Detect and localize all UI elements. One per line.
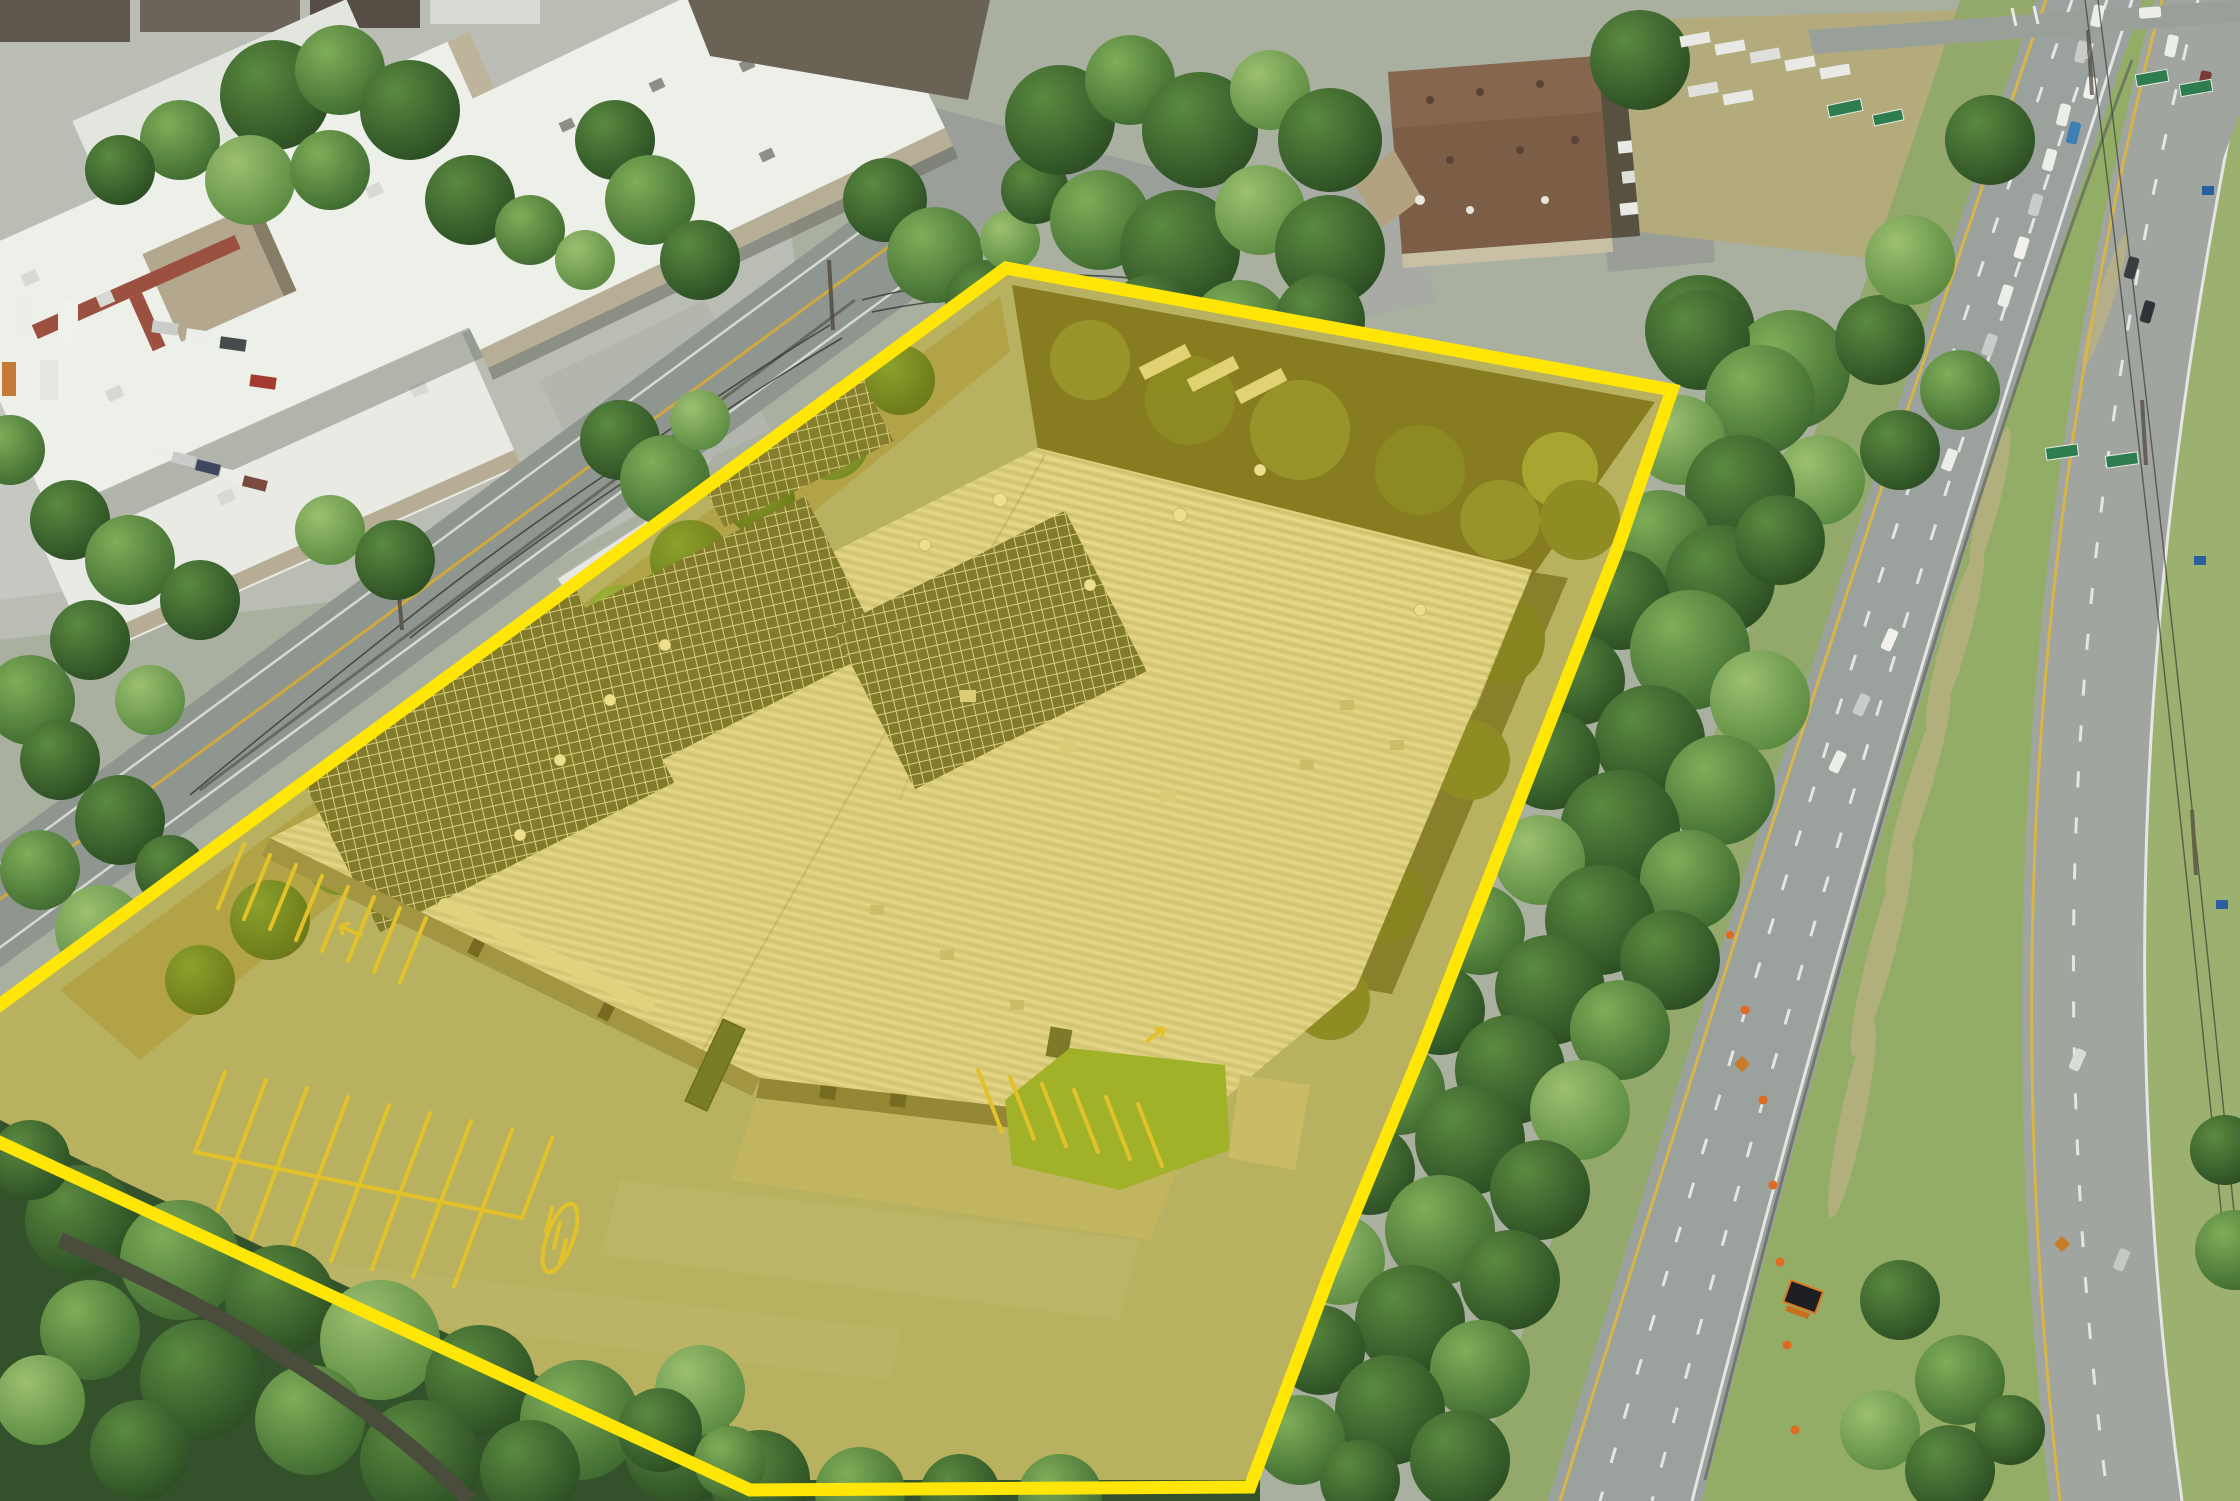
shipping-container <box>2 362 16 396</box>
aerial-photo <box>0 0 2240 1501</box>
cross-street-car <box>2139 6 2162 19</box>
aerial-photo-canvas <box>0 0 2240 1501</box>
